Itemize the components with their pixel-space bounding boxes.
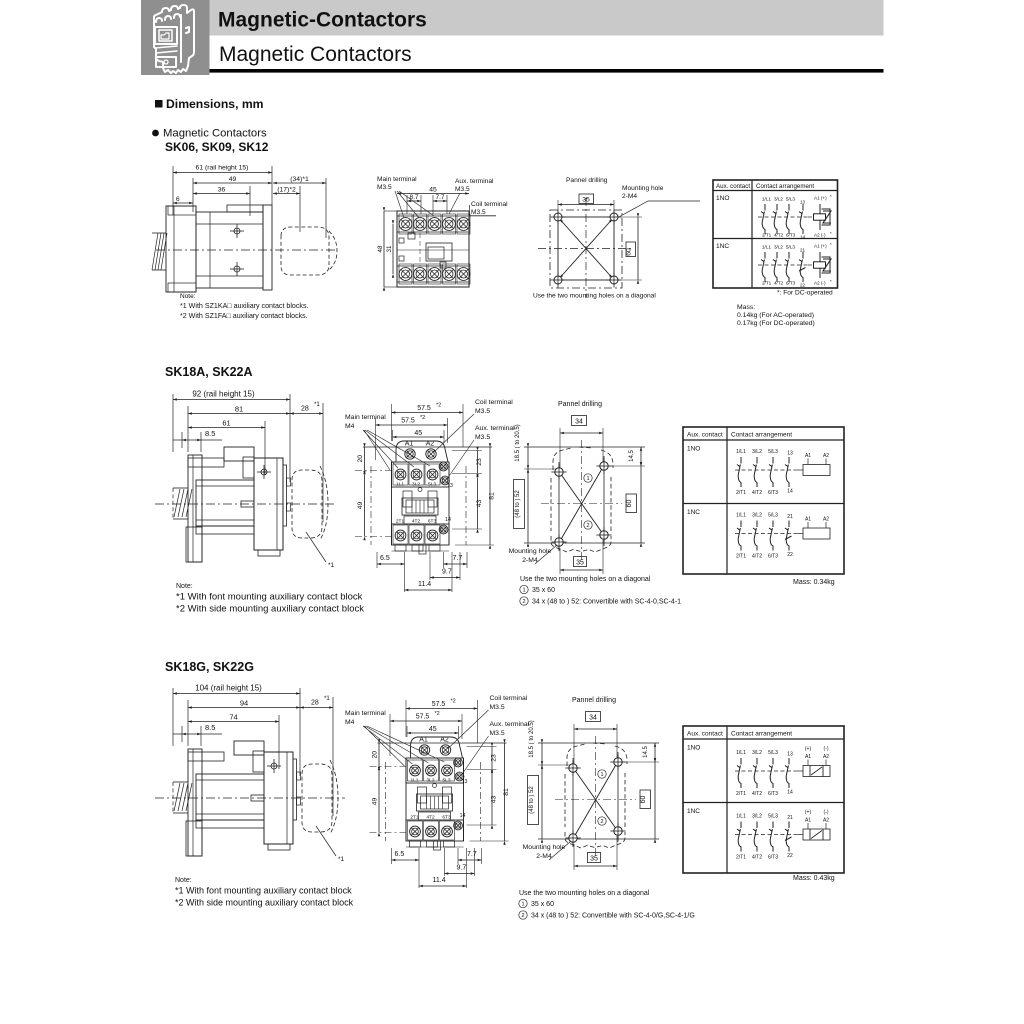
svg-text:Note:: Note: bbox=[175, 877, 192, 884]
svg-text:14: 14 bbox=[787, 489, 793, 495]
svg-text:48: 48 bbox=[377, 245, 384, 252]
svg-text:7.7: 7.7 bbox=[467, 851, 477, 858]
svg-text:(+): (+) bbox=[805, 810, 812, 816]
svg-text:M3.5: M3.5 bbox=[475, 408, 490, 415]
svg-text:2: 2 bbox=[521, 913, 524, 919]
svg-text:*: * bbox=[830, 194, 832, 199]
svg-text:Contact arrangement: Contact arrangement bbox=[756, 183, 814, 190]
svg-text:Mounting hole: Mounting hole bbox=[622, 185, 664, 192]
svg-text:1NC: 1NC bbox=[687, 509, 700, 516]
svg-text:Coil terminal: Coil terminal bbox=[490, 695, 528, 702]
svg-text:34 x (48 to ) 52: Convertible: 34 x (48 to ) 52: Convertible with SC-4-… bbox=[531, 913, 695, 920]
svg-text:21: 21 bbox=[787, 815, 793, 821]
svg-text:1NC: 1NC bbox=[716, 243, 729, 250]
svg-text:14: 14 bbox=[787, 790, 793, 796]
svg-text:Use the two mounting holes on: Use the two mounting holes on a diagonal bbox=[520, 576, 651, 583]
svg-text:1/L1: 1/L1 bbox=[762, 197, 771, 202]
svg-text:35: 35 bbox=[590, 856, 598, 863]
svg-text:2/T1: 2/T1 bbox=[762, 233, 772, 238]
svg-text:22: 22 bbox=[800, 283, 806, 288]
svg-text:2/T1: 2/T1 bbox=[762, 281, 772, 286]
svg-text:49: 49 bbox=[357, 502, 364, 510]
svg-text:2-M4: 2-M4 bbox=[536, 853, 552, 860]
svg-text:4/T2: 4/T2 bbox=[752, 490, 762, 496]
svg-text:34 x (48 to ) 52: Convertible: 34 x (48 to ) 52: Convertible with SC-4-… bbox=[532, 599, 681, 606]
svg-text:Mass: 0.43kg: Mass: 0.43kg bbox=[793, 875, 835, 882]
svg-text:Use the two mounting holes on: Use the two mounting holes on a diagonal bbox=[533, 293, 656, 300]
svg-text:1NO: 1NO bbox=[687, 446, 700, 453]
svg-text:*2: *2 bbox=[436, 403, 441, 409]
svg-text:1L1: 1L1 bbox=[396, 482, 404, 488]
svg-text:6/T3: 6/T3 bbox=[768, 855, 778, 861]
svg-text:60: 60 bbox=[626, 500, 633, 508]
svg-text:*1 With font mounting auxiliar: *1 With font mounting auxiliary contact … bbox=[175, 886, 352, 896]
svg-text:49: 49 bbox=[229, 176, 237, 183]
svg-text:Dimensions, mm: Dimensions, mm bbox=[166, 97, 264, 111]
svg-text:A1 (+): A1 (+) bbox=[814, 244, 827, 249]
svg-text:14.5: 14.5 bbox=[629, 450, 635, 462]
svg-text:14: 14 bbox=[800, 235, 806, 240]
svg-text:13: 13 bbox=[787, 752, 793, 758]
svg-text:35: 35 bbox=[576, 560, 584, 567]
svg-text:1NC: 1NC bbox=[687, 808, 700, 815]
svg-text:2: 2 bbox=[600, 819, 603, 825]
svg-text:57.5: 57.5 bbox=[416, 714, 430, 721]
svg-text:A2 (-): A2 (-) bbox=[814, 233, 826, 238]
svg-text:43: 43 bbox=[476, 500, 483, 508]
svg-text:13: 13 bbox=[462, 779, 468, 785]
svg-text:57.5: 57.5 bbox=[417, 405, 431, 412]
svg-text:*2: *2 bbox=[451, 699, 456, 705]
svg-text:Mounting hole: Mounting hole bbox=[523, 844, 566, 851]
svg-text:2-M4: 2-M4 bbox=[622, 193, 637, 200]
svg-text:2/T1: 2/T1 bbox=[736, 791, 746, 797]
svg-text:20: 20 bbox=[372, 751, 379, 759]
svg-text:*1 With font mounting auxiliar: *1 With font mounting auxiliary contact … bbox=[176, 592, 363, 603]
svg-text:Aux. contact: Aux. contact bbox=[716, 183, 750, 190]
svg-text:Magnetic Contactors: Magnetic Contactors bbox=[219, 43, 412, 66]
svg-text:Aux. terminal: Aux. terminal bbox=[490, 721, 530, 728]
svg-text:M3.5: M3.5 bbox=[471, 209, 486, 216]
svg-text:M3.5: M3.5 bbox=[475, 434, 490, 441]
svg-text:1NO: 1NO bbox=[687, 745, 700, 752]
svg-text:A2: A2 bbox=[426, 441, 435, 448]
svg-text:A1: A1 bbox=[805, 517, 811, 523]
svg-text:M3.5: M3.5 bbox=[455, 186, 470, 193]
svg-text:13: 13 bbox=[787, 451, 793, 457]
svg-text:20: 20 bbox=[357, 455, 364, 463]
svg-text:3/L2: 3/L2 bbox=[774, 197, 783, 202]
svg-text:18.5 ( to 20.5): 18.5 ( to 20.5) bbox=[515, 424, 521, 461]
svg-text:SK06, SK09, SK12: SK06, SK09, SK12 bbox=[165, 140, 269, 154]
svg-text:Pannel drilling: Pannel drilling bbox=[558, 401, 602, 408]
svg-text:A1 (+): A1 (+) bbox=[814, 196, 827, 201]
svg-text:23: 23 bbox=[476, 458, 483, 466]
svg-text:A1: A1 bbox=[405, 441, 414, 448]
svg-text:*1: *1 bbox=[324, 696, 330, 702]
svg-text:1/L1: 1/L1 bbox=[736, 750, 746, 756]
svg-text:5/L3: 5/L3 bbox=[786, 197, 795, 202]
svg-text:Aux. contact: Aux. contact bbox=[687, 731, 723, 738]
svg-text:Mass:: Mass: bbox=[737, 304, 755, 311]
svg-text:1: 1 bbox=[521, 901, 524, 907]
svg-text:94: 94 bbox=[240, 699, 248, 708]
svg-text:81: 81 bbox=[489, 492, 496, 500]
svg-text:60: 60 bbox=[640, 796, 647, 804]
svg-text:Coil terminal: Coil terminal bbox=[471, 201, 508, 208]
svg-text:Mass: 0.34kg: Mass: 0.34kg bbox=[793, 579, 835, 586]
svg-text:Magnetic-Contactors: Magnetic-Contactors bbox=[218, 9, 427, 32]
svg-text:Aux. terminal: Aux. terminal bbox=[475, 425, 515, 432]
svg-text:14: 14 bbox=[445, 517, 451, 523]
svg-text:2-M4: 2-M4 bbox=[522, 557, 538, 564]
svg-text:*1: *1 bbox=[328, 562, 335, 569]
svg-text:(17)*2: (17)*2 bbox=[277, 187, 296, 194]
svg-text:6/T3: 6/T3 bbox=[768, 490, 778, 496]
svg-text:A2: A2 bbox=[823, 453, 829, 459]
svg-text:45: 45 bbox=[429, 187, 437, 194]
svg-text:0.14kg (For AC-operated): 0.14kg (For AC-operated) bbox=[737, 312, 814, 319]
svg-text:28: 28 bbox=[301, 406, 309, 413]
svg-text:Main terminal: Main terminal bbox=[377, 176, 417, 183]
svg-text:104 (rail height 15): 104 (rail height 15) bbox=[195, 684, 262, 693]
svg-text:*2: *2 bbox=[435, 711, 440, 717]
svg-text:28: 28 bbox=[311, 700, 319, 707]
svg-text:*2: *2 bbox=[420, 415, 425, 421]
svg-text:Pannel drilling: Pannel drilling bbox=[572, 697, 616, 704]
svg-text:5/L3: 5/L3 bbox=[768, 750, 778, 756]
svg-text:9.7: 9.7 bbox=[442, 569, 452, 576]
svg-text:6.5: 6.5 bbox=[395, 851, 405, 858]
svg-text:(-): (-) bbox=[824, 746, 829, 752]
svg-text:2/T1: 2/T1 bbox=[736, 855, 746, 861]
svg-text:13: 13 bbox=[800, 200, 806, 205]
svg-text:57.5: 57.5 bbox=[432, 701, 446, 708]
svg-text:Aux. terminal: Aux. terminal bbox=[455, 178, 494, 185]
svg-text:34: 34 bbox=[575, 419, 583, 426]
svg-text:57.5: 57.5 bbox=[401, 418, 415, 425]
svg-text:45: 45 bbox=[429, 726, 437, 733]
svg-text:A2: A2 bbox=[823, 818, 829, 824]
svg-text:1NO: 1NO bbox=[716, 195, 730, 202]
svg-text:61 (rail height 15): 61 (rail height 15) bbox=[196, 165, 249, 172]
svg-text:22: 22 bbox=[787, 552, 793, 558]
svg-text:7.7: 7.7 bbox=[435, 194, 444, 201]
svg-text:45: 45 bbox=[414, 430, 422, 437]
svg-text:A1: A1 bbox=[805, 453, 811, 459]
svg-text:43: 43 bbox=[491, 796, 498, 804]
svg-text:1: 1 bbox=[522, 587, 525, 593]
svg-text:4/T2: 4/T2 bbox=[752, 554, 762, 560]
svg-text:34: 34 bbox=[589, 715, 597, 722]
svg-text:4/T2: 4/T2 bbox=[752, 791, 762, 797]
svg-text:5/L3: 5/L3 bbox=[768, 814, 778, 820]
svg-text:7.7: 7.7 bbox=[453, 555, 463, 562]
svg-text:1/L1: 1/L1 bbox=[762, 245, 771, 250]
svg-text:3/L2: 3/L2 bbox=[752, 750, 762, 756]
svg-text:1: 1 bbox=[600, 772, 603, 778]
svg-text:2: 2 bbox=[586, 523, 589, 529]
svg-text:0.17kg (For DC-operated): 0.17kg (For DC-operated) bbox=[737, 320, 815, 327]
svg-text:60: 60 bbox=[626, 248, 633, 256]
svg-text:3/L2: 3/L2 bbox=[752, 513, 762, 519]
svg-text:8.7: 8.7 bbox=[409, 194, 418, 201]
svg-text:5/L3: 5/L3 bbox=[768, 513, 778, 519]
svg-text:6/T3: 6/T3 bbox=[786, 233, 796, 238]
svg-text:61: 61 bbox=[222, 419, 230, 428]
svg-text:1L1: 1L1 bbox=[410, 778, 418, 784]
svg-text:2/T1: 2/T1 bbox=[736, 554, 746, 560]
svg-text:*2 With side mounting auxiliar: *2 With side mounting auxiliary contact … bbox=[175, 898, 354, 908]
svg-text:9.7: 9.7 bbox=[457, 865, 467, 872]
svg-text:Use the two mounting holes on: Use the two mounting holes on a diagonal bbox=[519, 890, 650, 897]
svg-text:2: 2 bbox=[522, 599, 525, 605]
svg-text:SK18A, SK22A: SK18A, SK22A bbox=[165, 365, 253, 379]
svg-text:*: * bbox=[830, 242, 832, 247]
svg-text:5L3: 5L3 bbox=[442, 778, 450, 784]
svg-text:A1: A1 bbox=[805, 818, 811, 824]
svg-text:(+): (+) bbox=[805, 746, 812, 752]
svg-text:6.5: 6.5 bbox=[380, 555, 390, 562]
svg-text:Note:: Note: bbox=[176, 583, 193, 590]
svg-text:SK18G, SK22G: SK18G, SK22G bbox=[165, 660, 254, 674]
svg-text:21: 21 bbox=[787, 514, 793, 520]
svg-text:23: 23 bbox=[491, 754, 498, 762]
svg-text:*1: *1 bbox=[314, 402, 320, 408]
svg-text:*: * bbox=[830, 279, 832, 284]
svg-text:(-): (-) bbox=[824, 810, 829, 816]
svg-text:35 x 60: 35 x 60 bbox=[532, 587, 555, 594]
svg-text:8.5: 8.5 bbox=[205, 429, 215, 438]
svg-text:3/L2: 3/L2 bbox=[774, 245, 783, 250]
svg-text:49: 49 bbox=[372, 798, 379, 806]
svg-text:81: 81 bbox=[235, 405, 243, 414]
svg-text:21: 21 bbox=[800, 248, 806, 253]
svg-text:81: 81 bbox=[503, 788, 510, 796]
svg-text:*1: *1 bbox=[338, 856, 345, 863]
svg-text:1/L1: 1/L1 bbox=[736, 449, 746, 455]
svg-text:13: 13 bbox=[447, 483, 453, 489]
svg-text:Note:: Note: bbox=[180, 293, 196, 300]
svg-text:35 x 60: 35 x 60 bbox=[531, 901, 554, 908]
svg-text:3/L2: 3/L2 bbox=[752, 449, 762, 455]
svg-text:(34)*1: (34)*1 bbox=[290, 176, 309, 183]
svg-text:14.5: 14.5 bbox=[643, 746, 649, 758]
svg-text:6/T3: 6/T3 bbox=[768, 791, 778, 797]
svg-text:11.4: 11.4 bbox=[433, 877, 446, 884]
svg-text:M3.5: M3.5 bbox=[490, 730, 505, 737]
svg-text:A2: A2 bbox=[823, 754, 829, 760]
svg-text:A2: A2 bbox=[440, 737, 449, 744]
svg-text:92 (rail height 15): 92 (rail height 15) bbox=[192, 390, 255, 399]
svg-text:4/T2: 4/T2 bbox=[774, 281, 784, 286]
svg-text:Magnetic Contactors: Magnetic Contactors bbox=[163, 128, 267, 140]
svg-text:A1: A1 bbox=[419, 737, 428, 744]
svg-text:Coil terminal: Coil terminal bbox=[475, 399, 513, 406]
svg-text:1/L1: 1/L1 bbox=[736, 814, 746, 820]
svg-text:3/L2: 3/L2 bbox=[752, 814, 762, 820]
svg-text:1/L1: 1/L1 bbox=[736, 513, 746, 519]
svg-text:Main terminal: Main terminal bbox=[345, 414, 386, 421]
svg-text:A2: A2 bbox=[823, 517, 829, 523]
svg-text:4/T2: 4/T2 bbox=[774, 233, 784, 238]
svg-text:3L2: 3L2 bbox=[412, 482, 420, 488]
svg-text:*2 With side mounting auxiliar: *2 With side mounting auxiliary contact … bbox=[176, 604, 364, 615]
svg-text:36: 36 bbox=[218, 187, 226, 194]
svg-text:Contact arrangement: Contact arrangement bbox=[731, 731, 792, 738]
svg-text:22: 22 bbox=[787, 853, 793, 859]
svg-text:M3.5: M3.5 bbox=[490, 704, 505, 711]
svg-text:4/T2: 4/T2 bbox=[752, 855, 762, 861]
svg-text:M4: M4 bbox=[345, 719, 355, 726]
svg-text:*: * bbox=[830, 231, 832, 236]
svg-text:*: For DC-operated: *: For DC-operated bbox=[777, 290, 833, 297]
svg-text:31: 31 bbox=[386, 245, 393, 252]
svg-text:M3.5: M3.5 bbox=[377, 184, 392, 191]
svg-text:Main terminal: Main terminal bbox=[345, 710, 386, 717]
svg-text:5/L3: 5/L3 bbox=[786, 245, 795, 250]
svg-text:2/T1: 2/T1 bbox=[736, 490, 746, 496]
svg-text:74: 74 bbox=[229, 713, 237, 722]
svg-text:5L3: 5L3 bbox=[428, 482, 436, 488]
svg-text:M4: M4 bbox=[345, 423, 355, 430]
svg-text:Pannel drilling: Pannel drilling bbox=[566, 177, 608, 184]
svg-text:6/T3: 6/T3 bbox=[768, 554, 778, 560]
svg-text:Mounting hole: Mounting hole bbox=[509, 548, 552, 555]
svg-text:A1: A1 bbox=[805, 754, 811, 760]
svg-text:A2 (-): A2 (-) bbox=[814, 281, 826, 286]
svg-text:14: 14 bbox=[460, 813, 466, 819]
svg-text:6/T3: 6/T3 bbox=[786, 281, 796, 286]
svg-text:Contact arrangement: Contact arrangement bbox=[731, 432, 792, 439]
svg-text:*2 With SZ1FA□ auxiliary conta: *2 With SZ1FA□ auxiliary contact blocks. bbox=[180, 312, 308, 320]
svg-text:5/L3: 5/L3 bbox=[768, 449, 778, 455]
svg-text:11.4: 11.4 bbox=[418, 581, 431, 588]
svg-text:(48 to ) 52: (48 to ) 52 bbox=[515, 490, 521, 518]
svg-text:3L2: 3L2 bbox=[426, 778, 434, 784]
svg-text:*1 With SZ1KA□ auxiliary conta: *1 With SZ1KA□ auxiliary contact blocks. bbox=[180, 302, 309, 310]
svg-text:1: 1 bbox=[586, 476, 589, 482]
svg-text:8.5: 8.5 bbox=[205, 723, 215, 732]
svg-text:Aux. contact: Aux. contact bbox=[687, 432, 723, 439]
svg-text:(48 to ) 52: (48 to ) 52 bbox=[529, 786, 535, 814]
svg-text:18.5 ( to 20.5): 18.5 ( to 20.5) bbox=[529, 720, 535, 757]
